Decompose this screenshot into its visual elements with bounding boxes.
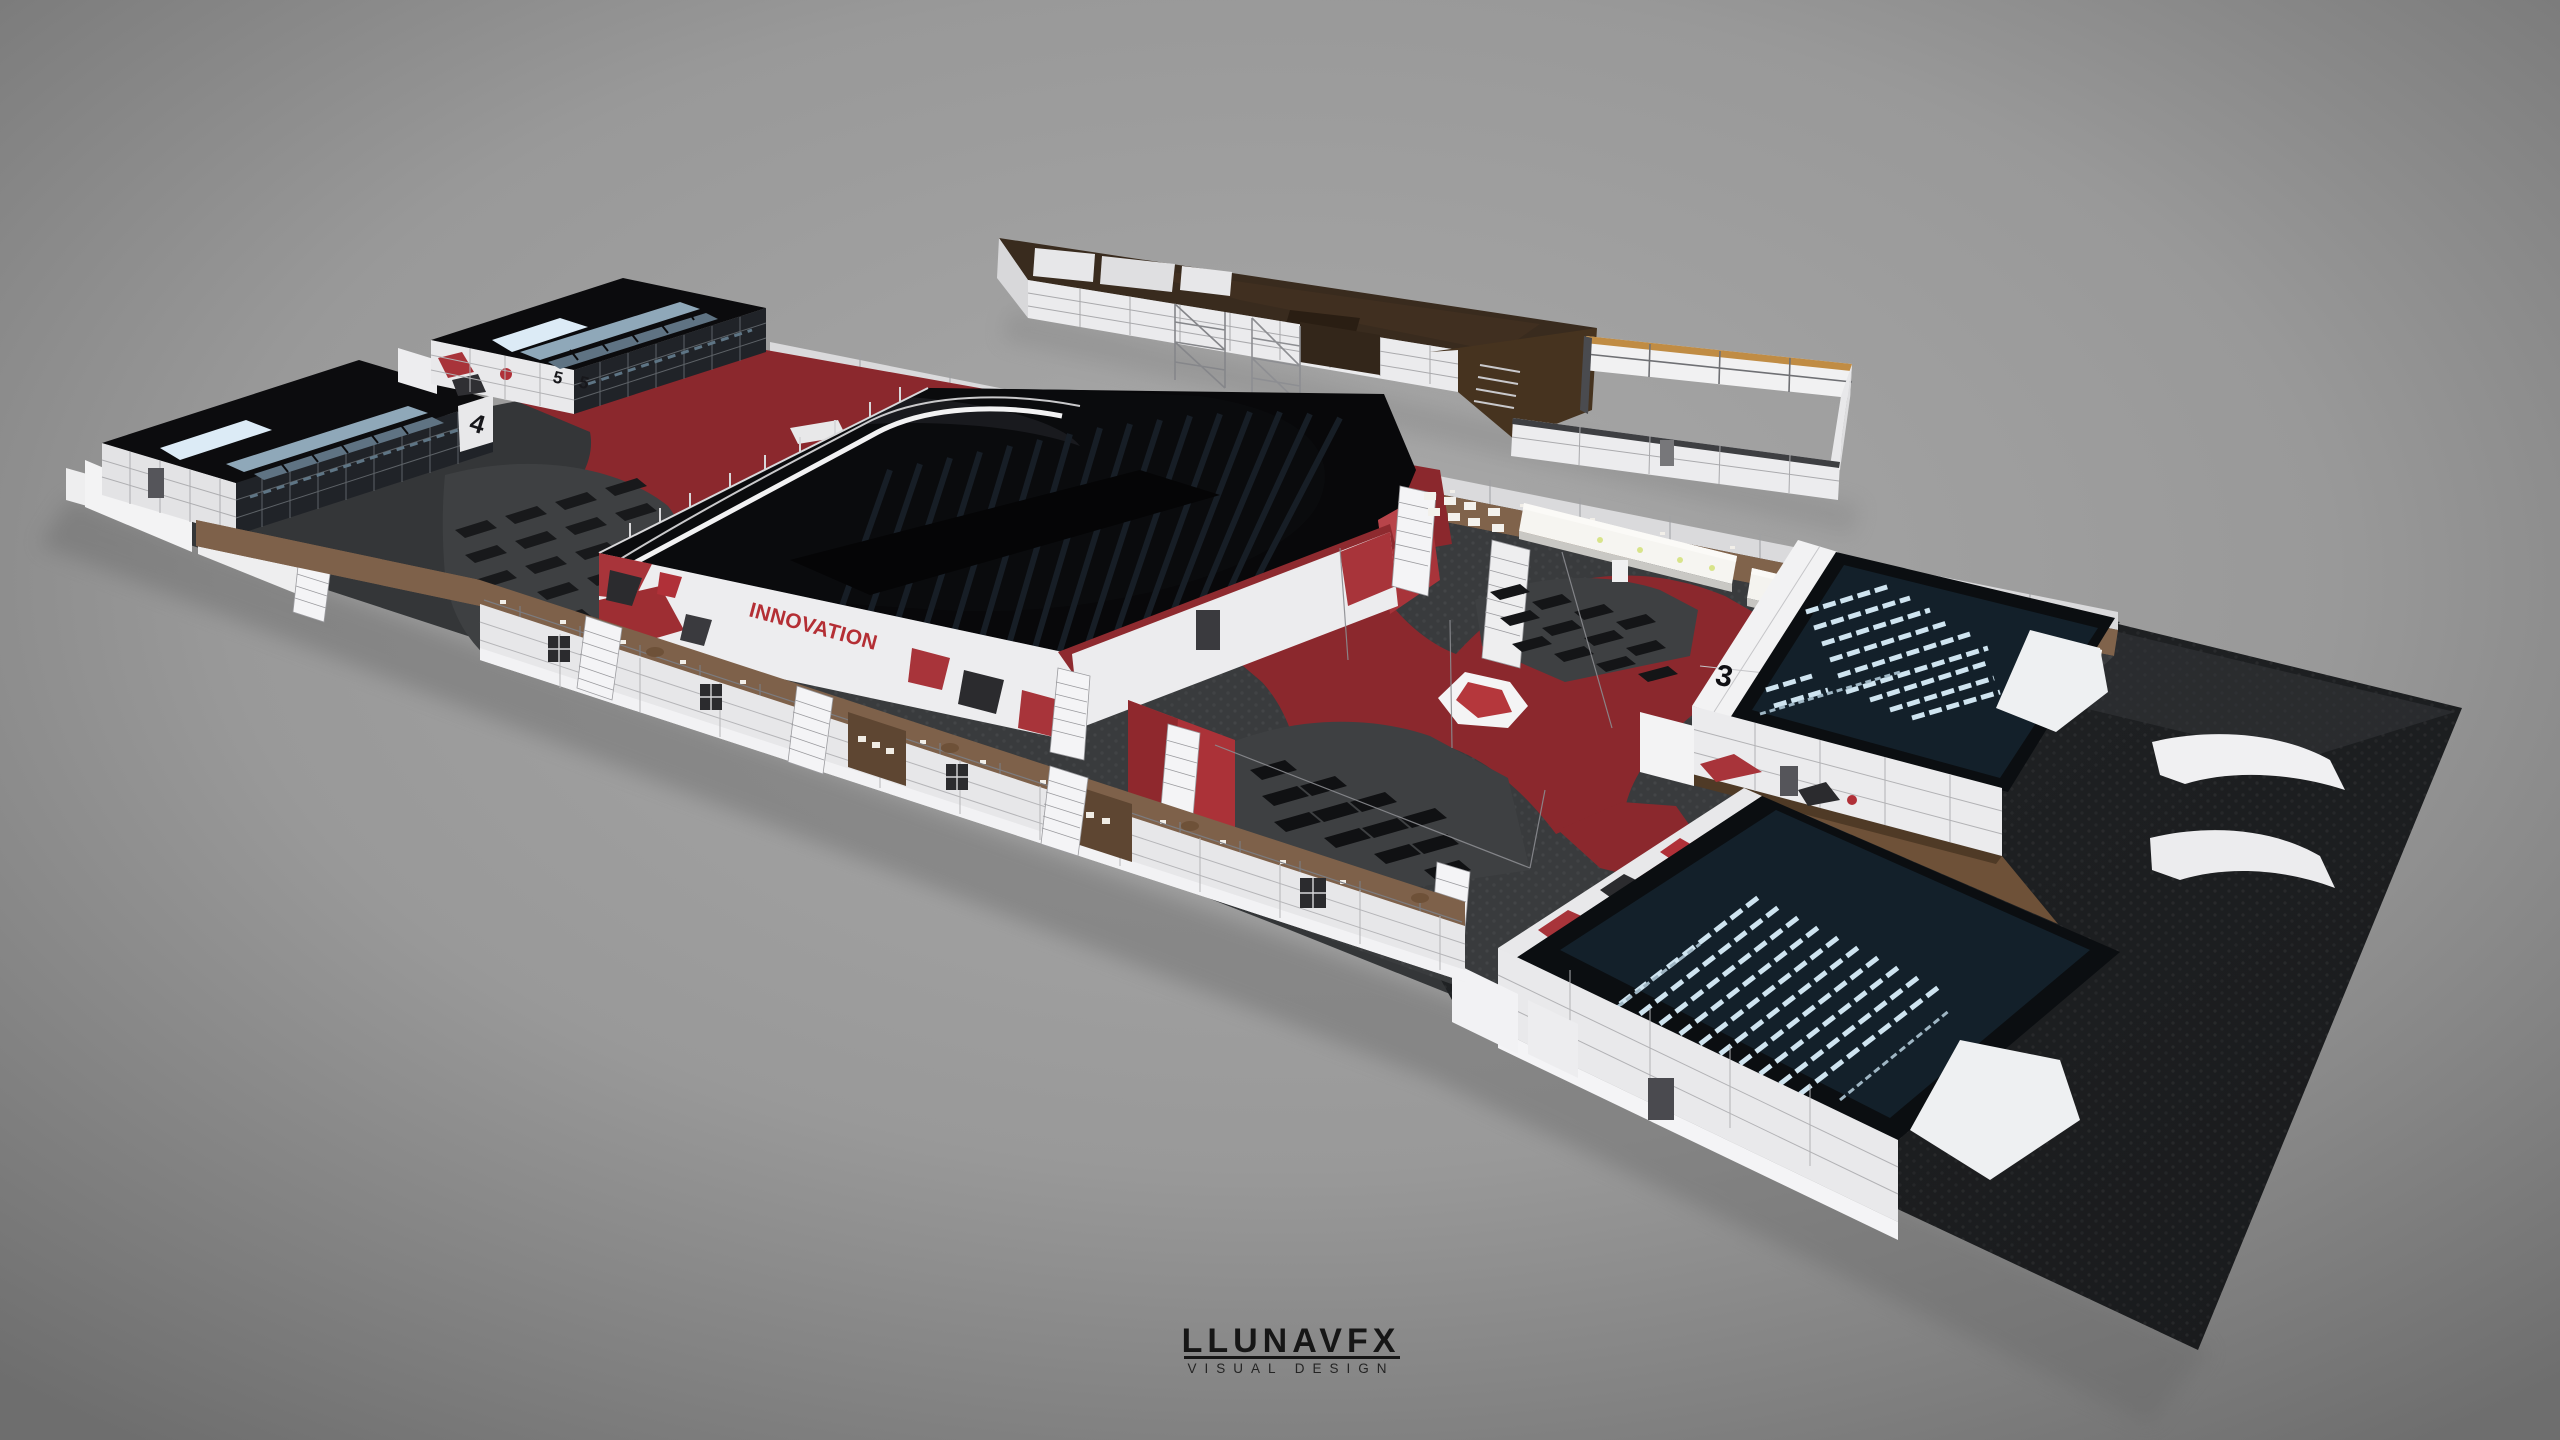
svg-text:VISUAL DESIGN: VISUAL DESIGN <box>1187 1361 1394 1376</box>
svg-text:LLUNAVFX: LLUNAVFX <box>1182 1322 1401 1360</box>
